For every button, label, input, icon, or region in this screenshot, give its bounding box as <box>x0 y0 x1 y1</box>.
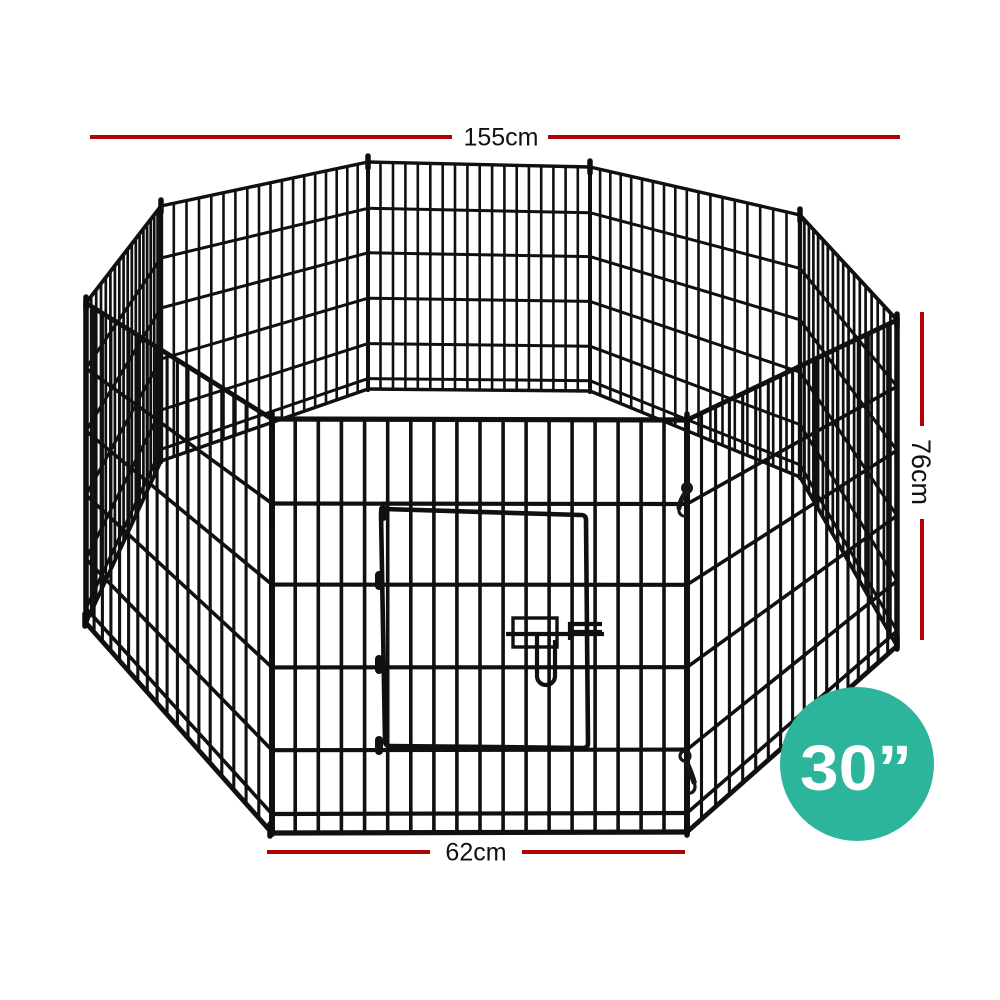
svg-text:62cm: 62cm <box>445 839 506 867</box>
svg-text:76cm: 76cm <box>906 439 936 505</box>
svg-text:30”: 30” <box>800 732 912 804</box>
svg-text:155cm: 155cm <box>463 124 538 152</box>
